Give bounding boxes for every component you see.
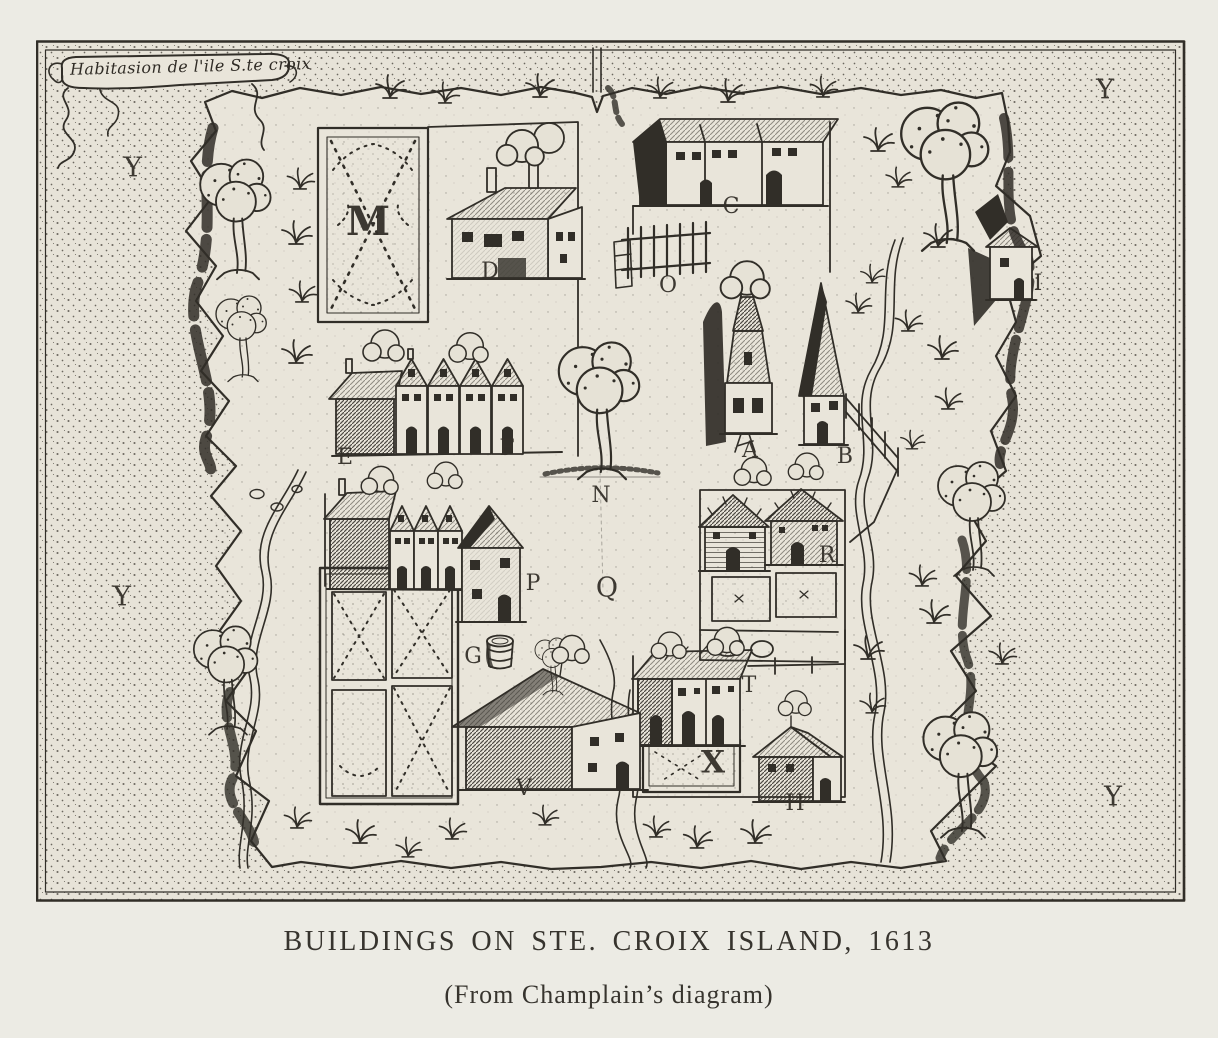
map-label-a: A — [742, 440, 758, 462]
book-page: Habitasion de l'ile S.te croix Y Y Y Y M… — [0, 0, 1218, 1038]
map-label-q: Q — [596, 575, 618, 602]
map-label-b: B — [837, 446, 853, 468]
map-label-y-1: Y — [124, 155, 142, 182]
map-label-m: M — [346, 202, 390, 242]
map-label-g: G — [464, 646, 482, 668]
map-label-n: N — [591, 485, 610, 507]
map-label-y-4: Y — [1104, 784, 1122, 811]
map-label-v: V — [516, 778, 532, 800]
map-label-o: O — [659, 275, 677, 297]
building-c — [633, 119, 838, 206]
map-label-y-2: Y — [113, 584, 131, 611]
map-label-x: X — [701, 748, 725, 779]
map-label-r: R — [819, 545, 836, 567]
map-label-d: D — [481, 261, 499, 283]
engraved-map — [36, 40, 1186, 902]
map-label-c: C — [723, 196, 740, 218]
map-label-e: E — [337, 447, 353, 469]
row-houses-t — [632, 646, 752, 746]
map-label-p: P — [526, 573, 541, 595]
map-label-t: T — [742, 675, 757, 697]
map-label-f: F — [499, 438, 514, 460]
caption-title: BUILDINGS ON STE. CROIX ISLAND, 1613 — [0, 926, 1218, 958]
champlain-map: Habitasion de l'ile S.te croix Y Y Y Y M… — [36, 40, 1186, 902]
caption-subtitle: (From Champlain’s diagram) — [0, 980, 1218, 1010]
map-label-i: I — [1034, 273, 1043, 295]
map-label-y-3: Y — [1096, 77, 1114, 104]
garden-x — [643, 740, 740, 792]
map-label-h: H — [785, 793, 804, 815]
